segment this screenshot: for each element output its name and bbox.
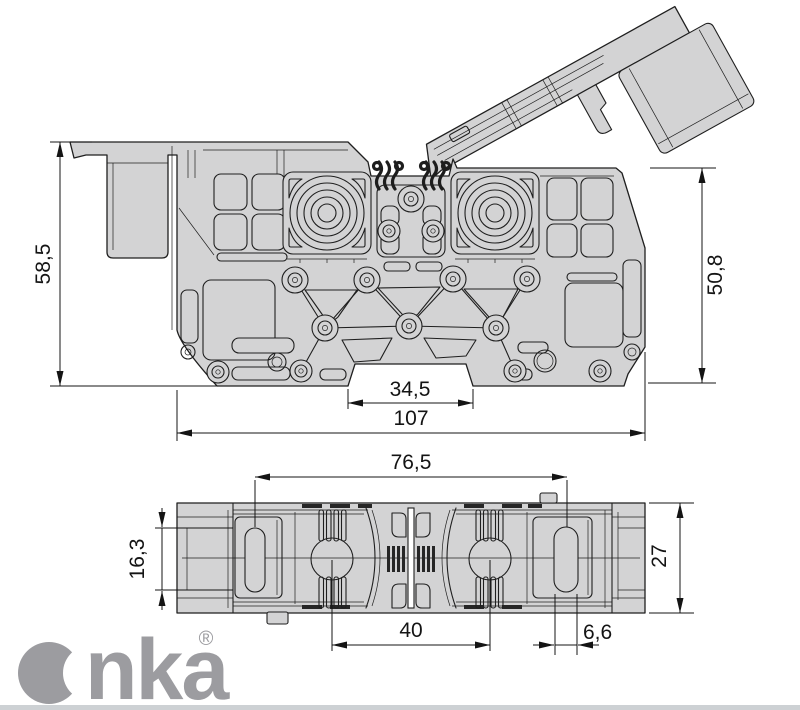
registered-trademark-icon: ®	[199, 628, 214, 650]
top-tab	[540, 493, 557, 503]
dimension-50-8: 50,8	[648, 168, 727, 383]
cover-latch-hook	[577, 85, 618, 136]
spring-housing-left	[283, 172, 371, 263]
dim-label-6-6: 6,6	[583, 621, 612, 644]
dim-label-40: 40	[399, 619, 422, 642]
spring-housing-right	[451, 172, 539, 263]
dim-label-107: 107	[393, 407, 428, 430]
dim-label-27: 27	[648, 544, 671, 567]
technical-drawing: 58,5 50,8 34,5 107 76,5 16,3 27	[0, 0, 800, 710]
page-bottom-divider	[0, 705, 800, 710]
bottom-tab	[267, 612, 288, 624]
dimension-27: 27	[648, 503, 694, 613]
dim-label-76-5: 76,5	[391, 451, 432, 474]
drawing-page: 58,5 50,8 34,5 107 76,5 16,3 27	[0, 0, 800, 710]
dim-label-58-5: 58,5	[32, 244, 55, 285]
left-oval-slot	[245, 528, 265, 592]
dimension-34-5: 34,5	[348, 378, 473, 409]
dim-label-34-5: 34,5	[390, 378, 431, 401]
right-oval-slot	[554, 527, 578, 592]
dim-label-16-3: 16,3	[126, 539, 149, 580]
dim-label-50-8: 50,8	[704, 255, 727, 296]
brand-logo: nka ®	[18, 622, 230, 710]
bottom-view	[177, 493, 645, 624]
side-view	[70, 0, 756, 386]
